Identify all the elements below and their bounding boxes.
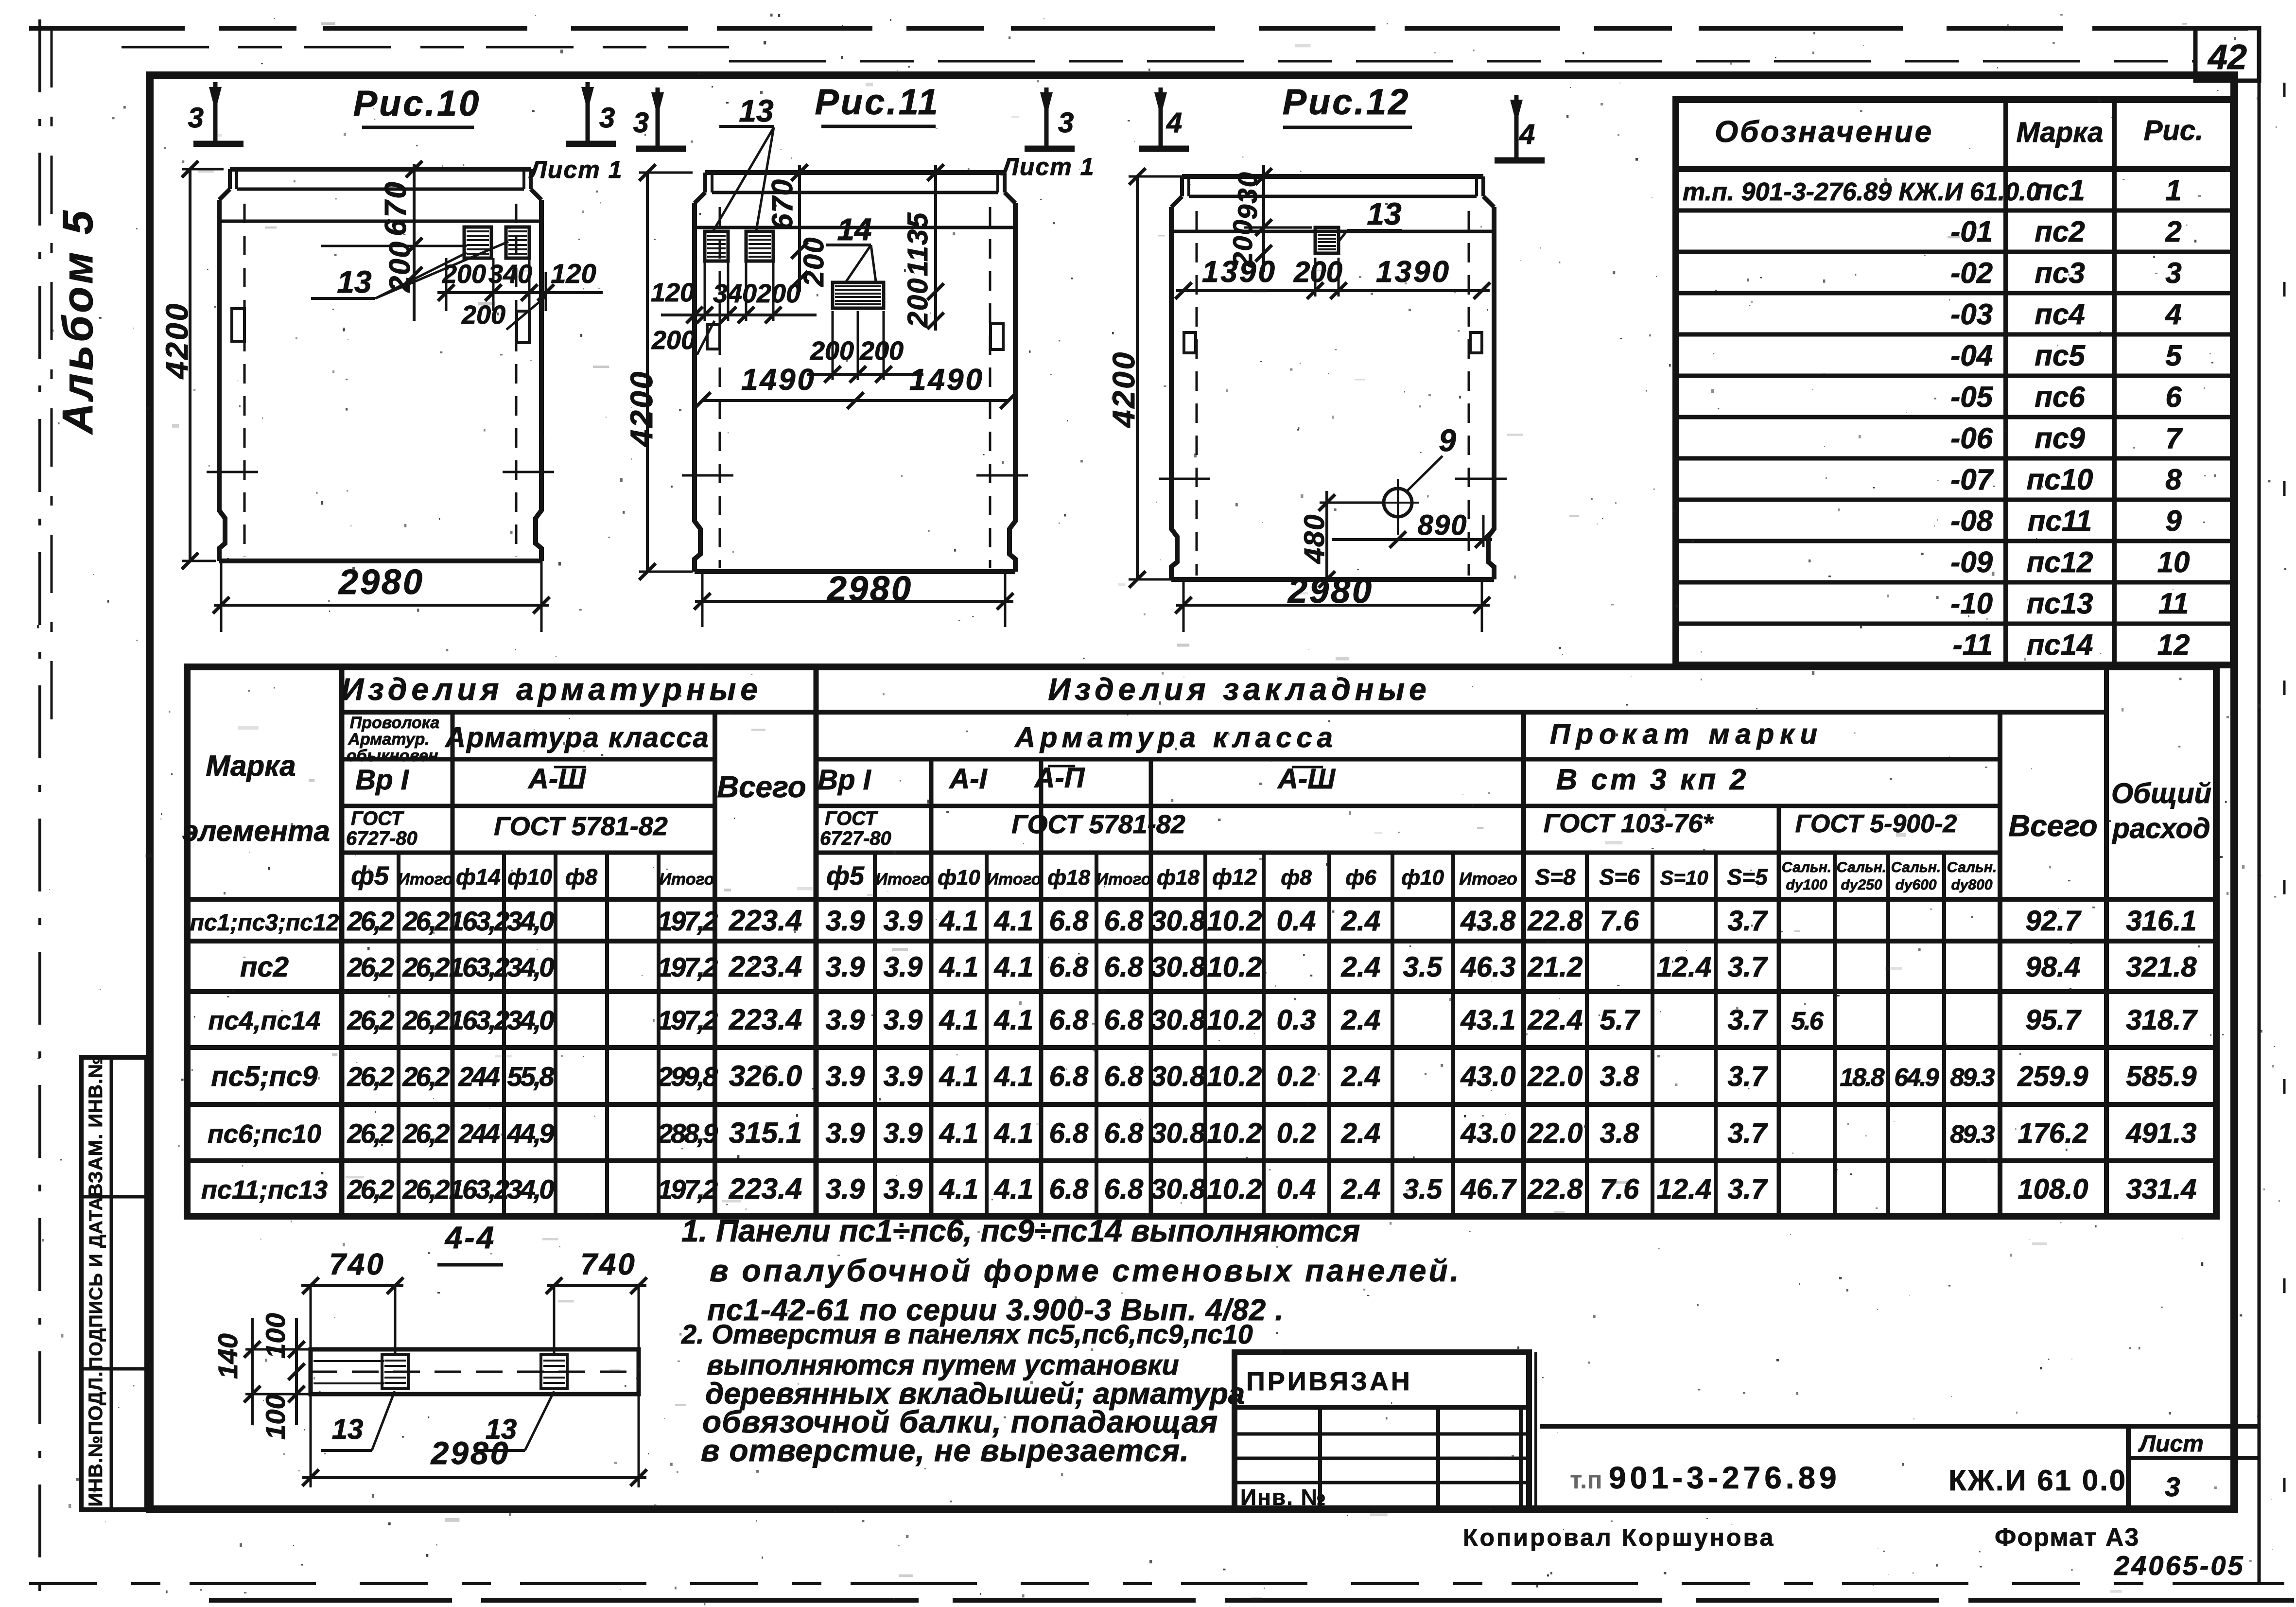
svg-text:КЖ.И 61 0.0: КЖ.И 61 0.0 (1948, 1464, 2127, 1497)
svg-text:3.8: 3.8 (1600, 1118, 1639, 1149)
svg-text:1135: 1135 (902, 212, 934, 277)
svg-text:пс3: пс3 (2035, 257, 2085, 289)
svg-text:4: 4 (1519, 119, 1535, 150)
svg-text:13: 13 (1367, 196, 1401, 231)
svg-text:120: 120 (651, 278, 695, 307)
svg-text:2.4: 2.4 (1341, 951, 1381, 983)
svg-text:-02: -02 (1950, 257, 1993, 289)
svg-text:6727-80: 6727-80 (820, 828, 891, 849)
svg-text:14: 14 (837, 212, 871, 247)
svg-text:140: 140 (212, 1333, 243, 1379)
svg-text:10.2: 10.2 (1207, 1173, 1262, 1205)
svg-text:-06: -06 (1950, 422, 1993, 454)
svg-text:3.8: 3.8 (1600, 1061, 1639, 1092)
svg-text:пс11;пс13: пс11;пс13 (201, 1175, 328, 1205)
svg-text:пс9: пс9 (2035, 422, 2085, 454)
svg-text:2.4: 2.4 (1341, 905, 1381, 937)
svg-text:5.7: 5.7 (1600, 1004, 1640, 1036)
svg-text:3.9: 3.9 (826, 905, 865, 937)
svg-text:6.8: 6.8 (1104, 1004, 1144, 1036)
svg-text:6.8: 6.8 (1104, 951, 1144, 983)
svg-text:3.5: 3.5 (1403, 951, 1443, 983)
svg-text:26,2: 26,2 (402, 952, 450, 982)
svg-text:dy800: dy800 (1951, 877, 1992, 893)
svg-text:6.8: 6.8 (1104, 1173, 1144, 1205)
svg-text:9: 9 (1439, 423, 1456, 458)
svg-text:3.7: 3.7 (1728, 905, 1768, 937)
svg-text:6.8: 6.8 (1104, 1118, 1144, 1149)
svg-text:-03: -03 (1950, 298, 1993, 331)
svg-text:пс4: пс4 (2035, 298, 2085, 331)
svg-text:13: 13 (332, 1414, 364, 1445)
svg-text:3: 3 (599, 102, 615, 134)
svg-text:30.8: 30.8 (1151, 1118, 1206, 1149)
svg-text:26,2: 26,2 (402, 1061, 450, 1092)
svg-text:Вр I: Вр I (355, 764, 409, 796)
svg-text:7.6: 7.6 (1600, 905, 1639, 937)
svg-text:740: 740 (329, 1248, 385, 1281)
svg-text:43.8: 43.8 (1461, 905, 1516, 937)
svg-text:4.1: 4.1 (994, 951, 1034, 983)
svg-text:340: 340 (488, 260, 532, 289)
svg-text:316.1: 316.1 (2126, 905, 2196, 937)
svg-text:6.8: 6.8 (1104, 1061, 1144, 1092)
svg-text:0.2: 0.2 (1277, 1061, 1316, 1092)
svg-text:4.1: 4.1 (939, 951, 979, 983)
svg-text:2. Отверстия в панелях пс5,пс: 2. Отверстия в панелях пс5,пс6,пс9,пс10 (681, 1319, 1253, 1349)
svg-text:197,2: 197,2 (658, 906, 718, 936)
svg-text:9: 9 (2165, 505, 2182, 537)
svg-text:4.1: 4.1 (939, 1061, 979, 1092)
svg-text:197,2: 197,2 (658, 1005, 718, 1035)
svg-text:ф5: ф5 (826, 861, 865, 891)
svg-text:4.1: 4.1 (994, 1004, 1034, 1036)
svg-text:6.8: 6.8 (1049, 951, 1089, 983)
svg-text:4: 4 (2165, 298, 2181, 331)
svg-text:-09: -09 (1950, 546, 1993, 578)
svg-text:-10: -10 (1950, 587, 1993, 620)
svg-text:10.2: 10.2 (1207, 905, 1262, 937)
svg-text:26,2: 26,2 (347, 1005, 395, 1035)
svg-text:34,0: 34,0 (507, 1005, 555, 1035)
svg-text:26,2: 26,2 (347, 1174, 395, 1205)
svg-text:Формат А3: Формат А3 (1995, 1523, 2139, 1552)
svg-text:10.2: 10.2 (1207, 951, 1262, 983)
svg-text:11: 11 (2158, 587, 2189, 620)
svg-text:64.9: 64.9 (1894, 1064, 1939, 1092)
svg-text:223.4: 223.4 (729, 904, 802, 937)
svg-text:-08: -08 (1950, 505, 1993, 537)
svg-text:89.3: 89.3 (1950, 1120, 1995, 1149)
svg-text:43.0: 43.0 (1461, 1118, 1516, 1149)
svg-text:Вр I: Вр I (818, 764, 871, 796)
svg-text:200: 200 (859, 336, 904, 366)
svg-text:18.8: 18.8 (1840, 1064, 1884, 1092)
svg-text:26,2: 26,2 (347, 906, 395, 936)
svg-text:Итого: Итого (659, 870, 714, 889)
svg-text:12.4: 12.4 (1657, 951, 1712, 983)
svg-text:S=10: S=10 (1660, 866, 1708, 889)
svg-text:26,2: 26,2 (402, 1005, 450, 1035)
svg-text:Арматура класса: Арматура класса (444, 722, 710, 753)
svg-text:пс2: пс2 (240, 951, 289, 983)
svg-text:10.2: 10.2 (1207, 1061, 1262, 1092)
svg-text:3.9: 3.9 (826, 1061, 865, 1092)
svg-text:98.4: 98.4 (2026, 951, 2081, 983)
svg-text:26,2: 26,2 (402, 1174, 450, 1205)
svg-text:ф10: ф10 (1401, 866, 1444, 890)
svg-text:321.8: 321.8 (2126, 951, 2197, 983)
svg-text:26,2: 26,2 (402, 1118, 450, 1149)
svg-text:ПОДПИСЬ И ДАТА: ПОДПИСЬ И ДАТА (86, 1197, 106, 1370)
svg-text:Итого: Итого (875, 870, 930, 889)
svg-text:пс5;пс9: пс5;пс9 (211, 1061, 317, 1092)
svg-text:34,0: 34,0 (507, 1174, 555, 1205)
svg-text:в опалубочной форме стеновых: в опалубочной форме стеновых панелей. (710, 1253, 1461, 1288)
svg-text:901-3-276.89: 901-3-276.89 (1609, 1460, 1841, 1495)
svg-text:-11: -11 (1953, 629, 1993, 661)
svg-text:55,8: 55,8 (507, 1061, 555, 1092)
svg-text:4.1: 4.1 (994, 1118, 1034, 1149)
svg-text:Марка: Марка (2016, 117, 2103, 148)
svg-text:ИНВ.№ПОДЛ.: ИНВ.№ПОДЛ. (85, 1371, 106, 1506)
svg-text:3: 3 (2165, 1471, 2180, 1502)
svg-text:пс5: пс5 (2035, 339, 2086, 372)
svg-text:223.4: 223.4 (729, 1003, 802, 1036)
svg-text:пс4,пс14: пс4,пс14 (208, 1006, 320, 1035)
svg-text:Рис.: Рис. (2144, 115, 2204, 146)
svg-text:10.2: 10.2 (1207, 1004, 1262, 1036)
svg-text:3.7: 3.7 (1728, 1118, 1768, 1149)
svg-text:В ст 3 кп 2: В ст 3 кп 2 (1556, 763, 1749, 796)
svg-text:30.8: 30.8 (1151, 905, 1206, 937)
svg-text:22.8: 22.8 (1528, 905, 1583, 937)
svg-text:6.8: 6.8 (1049, 905, 1089, 937)
svg-text:259.9: 259.9 (2017, 1061, 2088, 1092)
svg-text:30.8: 30.8 (1151, 951, 1206, 983)
svg-text:200: 200 (798, 237, 830, 287)
svg-text:Общий: Общий (2111, 778, 2211, 809)
svg-text:4: 4 (1166, 107, 1182, 139)
svg-text:6.8: 6.8 (1049, 1118, 1089, 1149)
svg-text:ГОСТ 5-900-2: ГОСТ 5-900-2 (1795, 810, 1957, 838)
svg-text:200: 200 (756, 279, 800, 308)
svg-text:элемента: элемента (182, 815, 330, 847)
svg-text:10: 10 (2157, 546, 2190, 578)
svg-text:318.7: 318.7 (2126, 1004, 2198, 1036)
svg-text:Итого: Итого (398, 870, 452, 889)
svg-text:2980: 2980 (826, 570, 913, 609)
svg-text:163,2: 163,2 (449, 906, 509, 936)
svg-text:10.2: 10.2 (1207, 1118, 1262, 1149)
svg-text:3.9: 3.9 (884, 1118, 923, 1149)
svg-text:13: 13 (337, 264, 371, 299)
svg-text:44,9: 44,9 (507, 1118, 555, 1149)
svg-text:331.4: 331.4 (2126, 1173, 2196, 1205)
svg-text:288,9: 288,9 (657, 1118, 718, 1149)
svg-text:2980: 2980 (338, 563, 424, 602)
svg-text:пс10: пс10 (2027, 463, 2093, 496)
svg-text:3.7: 3.7 (1728, 1061, 1768, 1092)
svg-text:200: 200 (902, 278, 934, 328)
svg-text:299,8: 299,8 (657, 1061, 718, 1092)
svg-text:3: 3 (188, 102, 204, 134)
svg-text:4.1: 4.1 (994, 905, 1034, 937)
svg-text:Марка: Марка (206, 750, 296, 782)
svg-text:Лист 1: Лист 1 (1001, 153, 1095, 180)
svg-text:200: 200 (1293, 256, 1342, 288)
svg-text:Рис.11: Рис.11 (815, 82, 939, 122)
svg-text:5.6: 5.6 (1791, 1007, 1824, 1035)
svg-text:выполняются путем установки: выполняются путем установки (707, 1349, 1179, 1381)
svg-text:ГОСТ: ГОСТ (351, 808, 405, 829)
svg-text:Рис.10: Рис.10 (353, 83, 481, 123)
svg-text:4200: 4200 (159, 302, 194, 380)
svg-text:12: 12 (2157, 629, 2190, 661)
svg-text:13: 13 (739, 93, 773, 128)
svg-text:890: 890 (1418, 509, 1468, 541)
svg-text:Обозначение: Обозначение (1715, 115, 1933, 149)
svg-text:197,2: 197,2 (658, 952, 718, 982)
svg-text:2.4: 2.4 (1341, 1173, 1381, 1205)
svg-text:пс6: пс6 (2035, 381, 2085, 413)
svg-text:24065-05: 24065-05 (2114, 1550, 2245, 1581)
svg-text:7: 7 (2165, 422, 2183, 454)
svg-text:ГОСТ 5781-82: ГОСТ 5781-82 (494, 812, 668, 841)
svg-text:100: 100 (260, 1394, 291, 1439)
svg-text:26,2: 26,2 (347, 1061, 395, 1092)
svg-text:А-I: А-I (948, 763, 988, 795)
svg-text:326.0: 326.0 (729, 1060, 802, 1092)
svg-text:163,2: 163,2 (449, 952, 509, 982)
svg-text:Прокат марки: Прокат марки (1550, 718, 1823, 750)
svg-text:0.4: 0.4 (1277, 905, 1316, 937)
svg-text:dy100: dy100 (1786, 877, 1827, 893)
svg-text:6.8: 6.8 (1049, 1061, 1089, 1092)
svg-text:4-4: 4-4 (444, 1220, 496, 1255)
svg-text:3.9: 3.9 (826, 1004, 865, 1036)
svg-text:3.9: 3.9 (884, 1061, 923, 1092)
svg-text:Итого: Итого (1459, 869, 1517, 889)
svg-text:46.3: 46.3 (1461, 951, 1516, 983)
svg-text:670: 670 (379, 180, 413, 236)
svg-text:95.7: 95.7 (2026, 1004, 2082, 1036)
svg-text:-01: -01 (1950, 215, 1993, 248)
svg-text:3.9: 3.9 (884, 1173, 923, 1205)
svg-text:8: 8 (2165, 463, 2182, 496)
svg-text:340: 340 (713, 279, 757, 308)
svg-text:-05: -05 (1950, 381, 1993, 413)
svg-text:2.4: 2.4 (1341, 1004, 1381, 1036)
svg-text:dy250: dy250 (1841, 877, 1882, 893)
svg-text:740: 740 (580, 1248, 636, 1281)
svg-text:Изделия закладные: Изделия закладные (1048, 672, 1430, 707)
svg-text:Изделия арматурные: Изделия арматурные (341, 672, 762, 707)
svg-text:100: 100 (260, 1313, 291, 1358)
svg-text:46.7: 46.7 (1461, 1173, 1517, 1205)
svg-text:244: 244 (458, 1118, 500, 1149)
svg-text:3.9: 3.9 (884, 905, 923, 937)
svg-text:43.0: 43.0 (1461, 1061, 1516, 1092)
svg-text:3: 3 (2165, 257, 2181, 289)
svg-text:6.8: 6.8 (1104, 905, 1144, 937)
svg-text:480: 480 (1299, 514, 1330, 564)
svg-text:3.9: 3.9 (826, 1173, 865, 1205)
svg-text:6: 6 (2165, 381, 2182, 413)
svg-text:ф8: ф8 (1281, 866, 1312, 890)
svg-text:-04: -04 (1950, 339, 1993, 372)
svg-text:244: 244 (458, 1061, 500, 1092)
svg-text:1490: 1490 (909, 363, 984, 397)
svg-text:пс1: пс1 (2035, 174, 2085, 207)
svg-text:92.7: 92.7 (2026, 905, 2082, 937)
svg-text:пс2: пс2 (2035, 215, 2085, 248)
svg-text:Итого: Итого (986, 870, 1041, 889)
svg-text:26,2: 26,2 (347, 1118, 395, 1149)
svg-text:2.4: 2.4 (1341, 1118, 1381, 1149)
svg-text:т.п: т.п (1570, 1466, 1602, 1494)
svg-text:Инв. №: Инв. № (1240, 1485, 1327, 1510)
svg-text:пс13: пс13 (2027, 587, 2093, 620)
svg-text:22.0: 22.0 (1528, 1118, 1583, 1149)
svg-text:Всего: Всего (717, 770, 806, 804)
svg-text:пс11: пс11 (2028, 505, 2092, 537)
svg-text:34,0: 34,0 (507, 952, 555, 982)
svg-text:4.1: 4.1 (994, 1173, 1034, 1205)
svg-text:3.9: 3.9 (884, 951, 923, 983)
svg-text:315.1: 315.1 (729, 1117, 802, 1149)
svg-text:176.2: 176.2 (2018, 1118, 2088, 1149)
svg-text:4.1: 4.1 (939, 1004, 979, 1036)
svg-text:3.7: 3.7 (1728, 951, 1768, 983)
svg-text:пс6;пс10: пс6;пс10 (208, 1119, 321, 1149)
svg-text:S=5: S=5 (1727, 864, 1768, 890)
svg-text:21.2: 21.2 (1528, 951, 1583, 983)
svg-text:4200: 4200 (1106, 350, 1141, 428)
svg-text:ф18: ф18 (1157, 866, 1200, 890)
svg-text:1390: 1390 (1202, 255, 1277, 289)
svg-text:223.4: 223.4 (729, 950, 802, 983)
svg-text:26,2: 26,2 (402, 906, 450, 936)
svg-text:пс1;пс3;пс12: пс1;пс3;пс12 (190, 910, 339, 936)
svg-text:4.1: 4.1 (939, 1118, 979, 1149)
svg-text:200: 200 (442, 260, 486, 289)
svg-text:Сальн.: Сальн. (1891, 859, 1941, 875)
svg-text:0.4: 0.4 (1277, 1173, 1316, 1205)
svg-text:4.1: 4.1 (994, 1061, 1034, 1092)
svg-text:Лист: Лист (2138, 1431, 2204, 1457)
svg-text:3.9: 3.9 (826, 951, 865, 983)
svg-text:2: 2 (2165, 215, 2181, 248)
svg-text:Альбом 5: Альбом 5 (53, 208, 102, 435)
svg-text:12.4: 12.4 (1657, 1173, 1712, 1205)
svg-text:120: 120 (551, 258, 596, 289)
svg-text:89.3: 89.3 (1950, 1064, 1995, 1092)
svg-text:1: 1 (2165, 174, 2181, 207)
svg-text:3: 3 (633, 107, 649, 139)
svg-text:491.3: 491.3 (2125, 1118, 2196, 1149)
svg-text:42: 42 (2207, 38, 2247, 77)
svg-text:Лист 1: Лист 1 (529, 156, 623, 183)
svg-text:930: 930 (1232, 171, 1263, 219)
svg-text:22.8: 22.8 (1528, 1173, 1583, 1205)
svg-text:163,2: 163,2 (449, 1005, 509, 1035)
svg-text:Всего: Всего (2008, 809, 2097, 843)
svg-text:в отверстие, не вырезается.: в отверстие, не вырезается. (701, 1433, 1189, 1468)
svg-text:197,2: 197,2 (658, 1174, 718, 1205)
svg-text:1. Панели пс1÷пс6, пс9÷пс14 вы: 1. Панели пс1÷пс6, пс9÷пс14 выполняются (681, 1213, 1360, 1248)
svg-text:Сальн.: Сальн. (1782, 859, 1831, 875)
svg-text:22.0: 22.0 (1528, 1061, 1583, 1092)
svg-text:0.3: 0.3 (1277, 1004, 1316, 1036)
svg-text:ГОСТ 5781-82: ГОСТ 5781-82 (1011, 810, 1185, 839)
svg-text:ф10: ф10 (507, 864, 552, 890)
svg-text:7.6: 7.6 (1600, 1173, 1639, 1205)
svg-text:1490: 1490 (741, 363, 816, 397)
svg-text:6.8: 6.8 (1049, 1173, 1089, 1205)
svg-text:S=8: S=8 (1535, 864, 1576, 890)
svg-text:ВЗАМ. ИНВ.№: ВЗАМ. ИНВ.№ (85, 1056, 106, 1197)
svg-text:4.1: 4.1 (939, 1173, 979, 1205)
svg-text:108.0: 108.0 (2018, 1173, 2088, 1205)
svg-text:2.4: 2.4 (1341, 1061, 1381, 1092)
svg-text:3.5: 3.5 (1403, 1173, 1443, 1205)
svg-text:ф14: ф14 (456, 864, 501, 890)
svg-text:4200: 4200 (624, 370, 659, 448)
svg-text:ф8: ф8 (565, 864, 598, 890)
svg-text:3.9: 3.9 (884, 1004, 923, 1036)
svg-text:пс12: пс12 (2027, 546, 2093, 578)
svg-text:Сальн.: Сальн. (1837, 859, 1886, 875)
svg-text:4.1: 4.1 (939, 905, 979, 937)
svg-text:2980: 2980 (1287, 572, 1374, 611)
svg-text:30.8: 30.8 (1151, 1173, 1206, 1205)
svg-text:6.8: 6.8 (1049, 1004, 1089, 1036)
svg-text:3: 3 (1058, 107, 1074, 139)
svg-text:Сальн.: Сальн. (1947, 859, 1997, 875)
svg-text:обыкновен.: обыкновен. (347, 747, 443, 765)
svg-text:ф5: ф5 (351, 861, 389, 891)
svg-text:ф12: ф12 (1212, 864, 1257, 890)
svg-text:-07: -07 (1950, 463, 1994, 496)
svg-text:Арматур.: Арматур. (348, 730, 429, 749)
svg-text:670: 670 (766, 178, 799, 230)
svg-text:163,2: 163,2 (449, 1174, 509, 1205)
svg-text:0.2: 0.2 (1277, 1118, 1316, 1149)
svg-text:Рис.12: Рис.12 (1283, 82, 1410, 122)
svg-text:пс14: пс14 (2027, 629, 2093, 661)
svg-text:ф18: ф18 (1047, 866, 1090, 890)
svg-text:43.1: 43.1 (1461, 1004, 1516, 1036)
svg-text:34,0: 34,0 (507, 906, 555, 936)
svg-text:ф10: ф10 (938, 866, 980, 890)
svg-text:Копировал Коршунова: Копировал Коршунова (1463, 1524, 1775, 1551)
svg-text:200: 200 (651, 326, 696, 355)
svg-text:ГОСТ: ГОСТ (825, 808, 879, 829)
svg-text:Проволока: Проволока (350, 714, 439, 732)
svg-text:26,2: 26,2 (347, 952, 395, 982)
svg-text:5: 5 (2165, 339, 2182, 372)
svg-text:6727-80: 6727-80 (346, 828, 417, 849)
svg-text:ПРИВЯЗАН: ПРИВЯЗАН (1246, 1367, 1412, 1396)
svg-text:dy600: dy600 (1895, 877, 1936, 893)
svg-text:3.7: 3.7 (1728, 1004, 1768, 1036)
svg-text:ф6: ф6 (1345, 866, 1376, 890)
svg-text:ГОСТ 103-76*: ГОСТ 103-76* (1544, 809, 1715, 838)
svg-text:1390: 1390 (1376, 255, 1451, 289)
svg-text:2980: 2980 (430, 1435, 510, 1471)
svg-text:223.4: 223.4 (729, 1172, 802, 1205)
